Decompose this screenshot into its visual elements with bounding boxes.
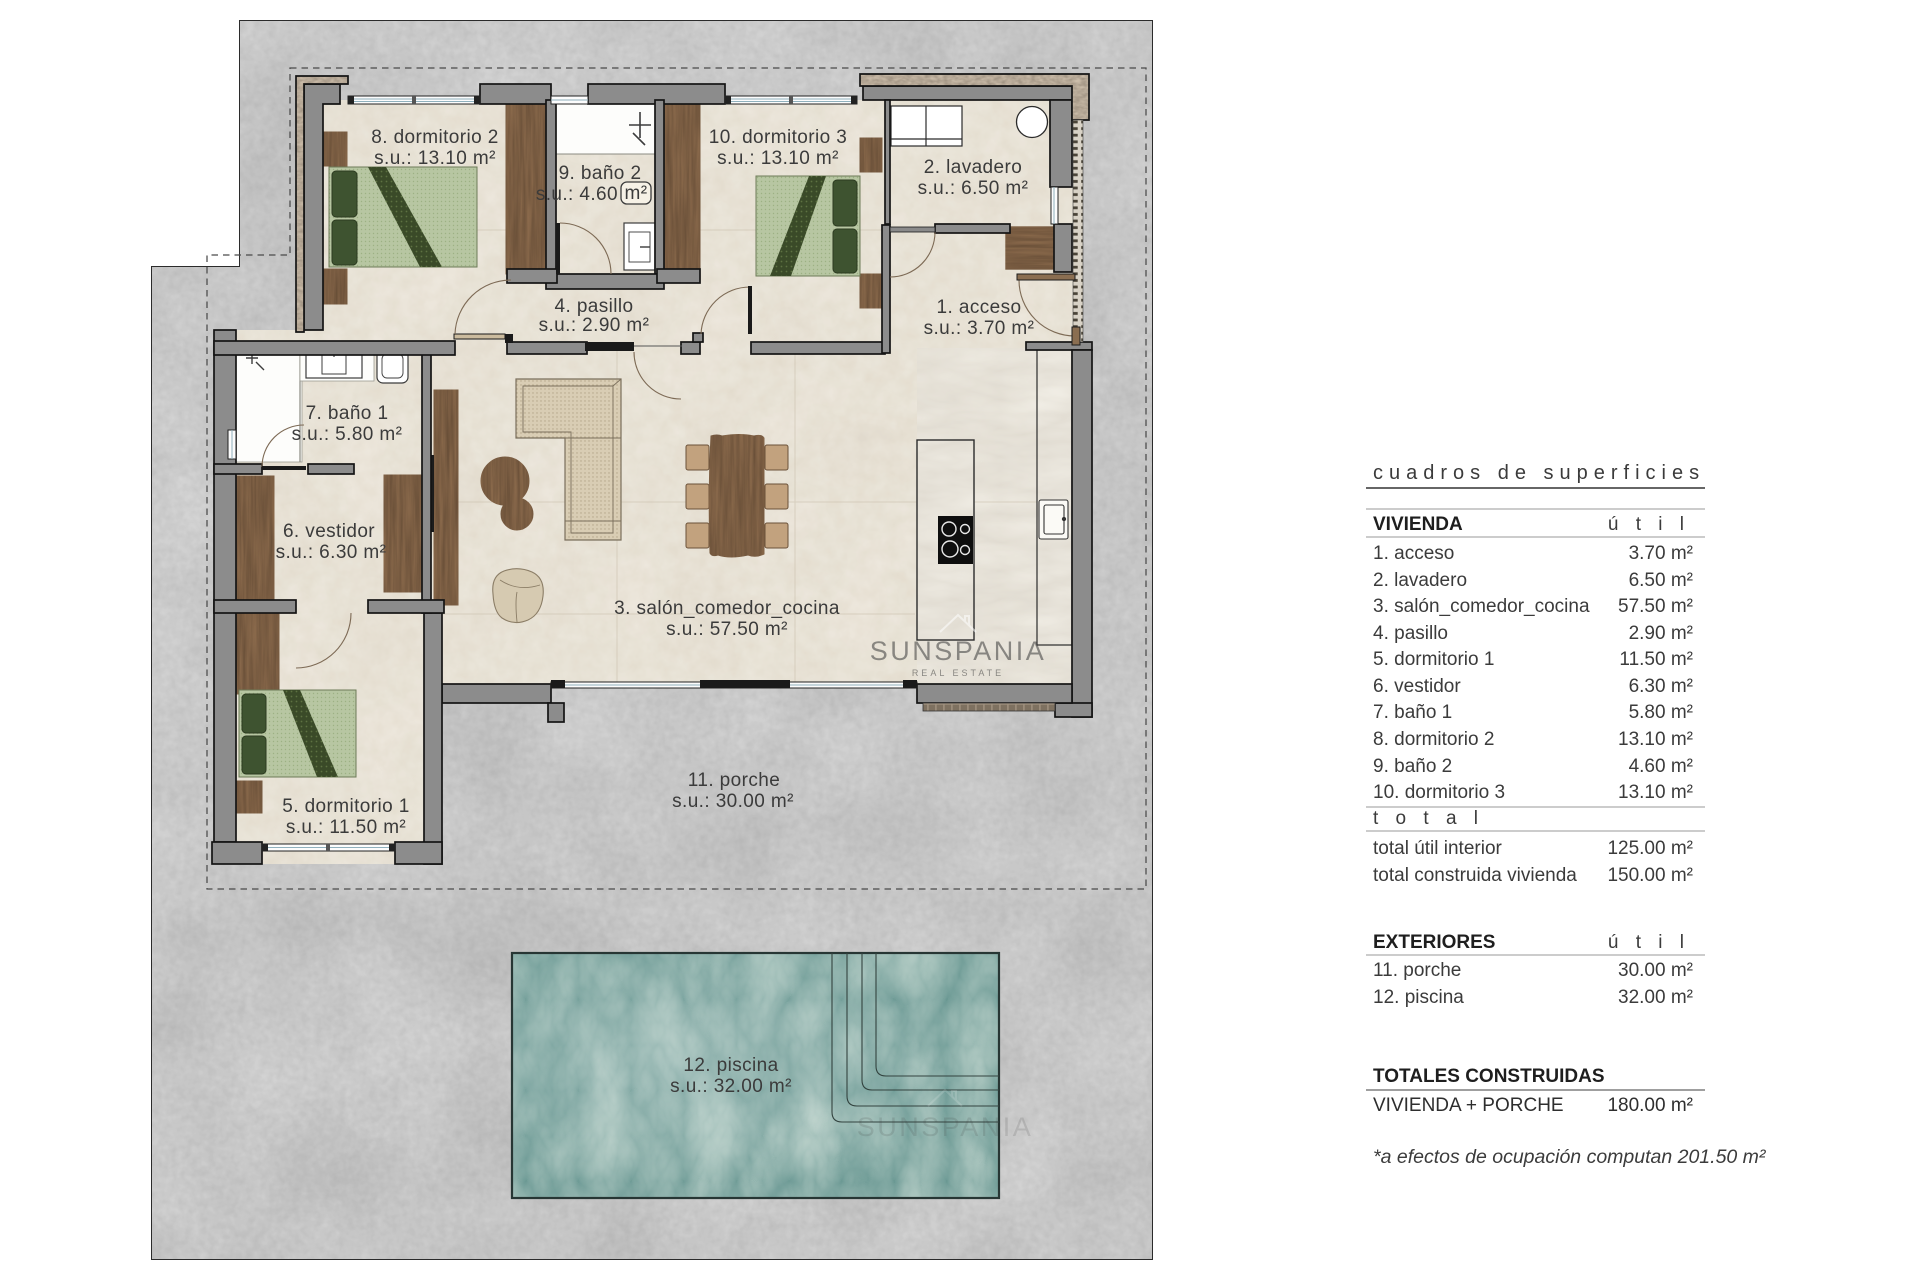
svg-text:8. dormitorio 2: 8. dormitorio 2 [1373, 729, 1494, 750]
svg-text:REAL ESTATE: REAL ESTATE [912, 668, 1004, 678]
svg-text:3. salón_comedor_cocina: 3. salón_comedor_cocina [614, 598, 840, 619]
svg-text:VIVIENDA + PORCHE: VIVIENDA + PORCHE [1373, 1095, 1564, 1116]
svg-text:10. dormitorio 3: 10. dormitorio 3 [709, 127, 847, 148]
svg-text:12. piscina: 12. piscina [683, 1055, 778, 1076]
svg-text:10. dormitorio 3: 10. dormitorio 3 [1373, 782, 1505, 803]
svg-text:6. vestidor: 6. vestidor [283, 521, 375, 542]
svg-text:6.30 m²: 6.30 m² [1629, 676, 1693, 697]
svg-text:s.u.: 2.90 m²: s.u.: 2.90 m² [539, 315, 650, 336]
svg-text:s.u.: 4.60: s.u.: 4.60 [536, 184, 618, 205]
svg-text:2.90 m²: 2.90 m² [1629, 623, 1693, 644]
svg-text:cuadros de superficies: cuadros de superficies [1373, 462, 1705, 484]
svg-text:5. dormitorio 1: 5. dormitorio 1 [1373, 649, 1494, 670]
svg-text:125.00 m²: 125.00 m² [1607, 838, 1693, 859]
svg-text:180.00 m²: 180.00 m² [1607, 1095, 1693, 1116]
svg-text:4.60 m²: 4.60 m² [1629, 756, 1693, 777]
svg-text:30.00 m²: 30.00 m² [1618, 960, 1693, 981]
svg-text:9. baño 2: 9. baño 2 [559, 163, 642, 184]
svg-text:VIVIENDA: VIVIENDA [1373, 514, 1463, 535]
svg-text:s.u.: 5.80 m²: s.u.: 5.80 m² [292, 424, 403, 445]
svg-text:13.10 m²: 13.10 m² [1618, 782, 1693, 803]
svg-text:6.50 m²: 6.50 m² [1629, 570, 1693, 591]
svg-text:TOTALES CONSTRUIDAS: TOTALES CONSTRUIDAS [1373, 1066, 1605, 1087]
svg-text:3.70 m²: 3.70 m² [1629, 543, 1693, 564]
svg-text:*a efectos de ocupación comput: *a efectos de ocupación computan 201.50 … [1373, 1146, 1767, 1168]
svg-text:1. acceso: 1. acceso [1373, 543, 1454, 564]
svg-text:s.u.: 3.70 m²: s.u.: 3.70 m² [924, 318, 1035, 339]
svg-text:13.10 m²: 13.10 m² [1618, 729, 1693, 750]
svg-text:ú t i l: ú t i l [1608, 932, 1690, 953]
svg-text:3. salón_comedor_cocina: 3. salón_comedor_cocina [1373, 596, 1590, 617]
svg-text:SUNSPANIA: SUNSPANIA [870, 636, 1047, 666]
svg-text:s.u.: 11.50 m²: s.u.: 11.50 m² [286, 817, 406, 838]
svg-text:5. dormitorio 1: 5. dormitorio 1 [282, 796, 409, 817]
svg-text:1. acceso: 1. acceso [937, 297, 1022, 318]
svg-text:7. baño 1: 7. baño 1 [1373, 702, 1452, 723]
svg-text:9. baño 2: 9. baño 2 [1373, 756, 1452, 777]
svg-text:2. lavadero: 2. lavadero [924, 157, 1022, 178]
svg-text:4. pasillo: 4. pasillo [1373, 623, 1448, 644]
svg-text:t o t a l: t o t a l [1373, 808, 1484, 829]
svg-text:12. piscina: 12. piscina [1373, 987, 1464, 1008]
svg-text:s.u.: 32.00 m²: s.u.: 32.00 m² [670, 1076, 792, 1097]
svg-text:total útil interior: total útil interior [1373, 838, 1503, 859]
svg-text:11. porche: 11. porche [688, 770, 780, 791]
svg-text:s.u.: 13.10 m²: s.u.: 13.10 m² [374, 148, 496, 169]
svg-text:4. pasillo: 4. pasillo [555, 296, 634, 317]
svg-text:11.50 m²: 11.50 m² [1619, 649, 1693, 670]
svg-text:57.50 m²: 57.50 m² [1618, 596, 1693, 617]
svg-text:ú t i l: ú t i l [1608, 514, 1690, 535]
svg-text:s.u.: 30.00 m²: s.u.: 30.00 m² [672, 791, 794, 812]
svg-text:11. porche: 11. porche [1373, 960, 1461, 981]
svg-text:32.00 m²: 32.00 m² [1618, 987, 1693, 1008]
svg-text:total construida vivienda: total construida vivienda [1373, 865, 1577, 886]
svg-text:7. baño 1: 7. baño 1 [306, 403, 389, 424]
svg-text:s.u.: 57.50 m²: s.u.: 57.50 m² [666, 619, 788, 640]
svg-text:5.80 m²: 5.80 m² [1629, 702, 1693, 723]
svg-text:2. lavadero: 2. lavadero [1373, 570, 1467, 591]
svg-text:m²: m² [625, 183, 648, 204]
svg-text:s.u.: 6.30 m²: s.u.: 6.30 m² [276, 542, 387, 563]
svg-text:6. vestidor: 6. vestidor [1373, 676, 1461, 697]
svg-text:150.00 m²: 150.00 m² [1607, 865, 1693, 886]
svg-text:s.u.: 6.50 m²: s.u.: 6.50 m² [918, 178, 1029, 199]
svg-text:EXTERIORES: EXTERIORES [1373, 932, 1495, 953]
svg-text:8. dormitorio 2: 8. dormitorio 2 [371, 127, 498, 148]
svg-text:SUNSPANIA: SUNSPANIA [857, 1112, 1034, 1142]
svg-text:s.u.: 13.10 m²: s.u.: 13.10 m² [717, 148, 839, 169]
